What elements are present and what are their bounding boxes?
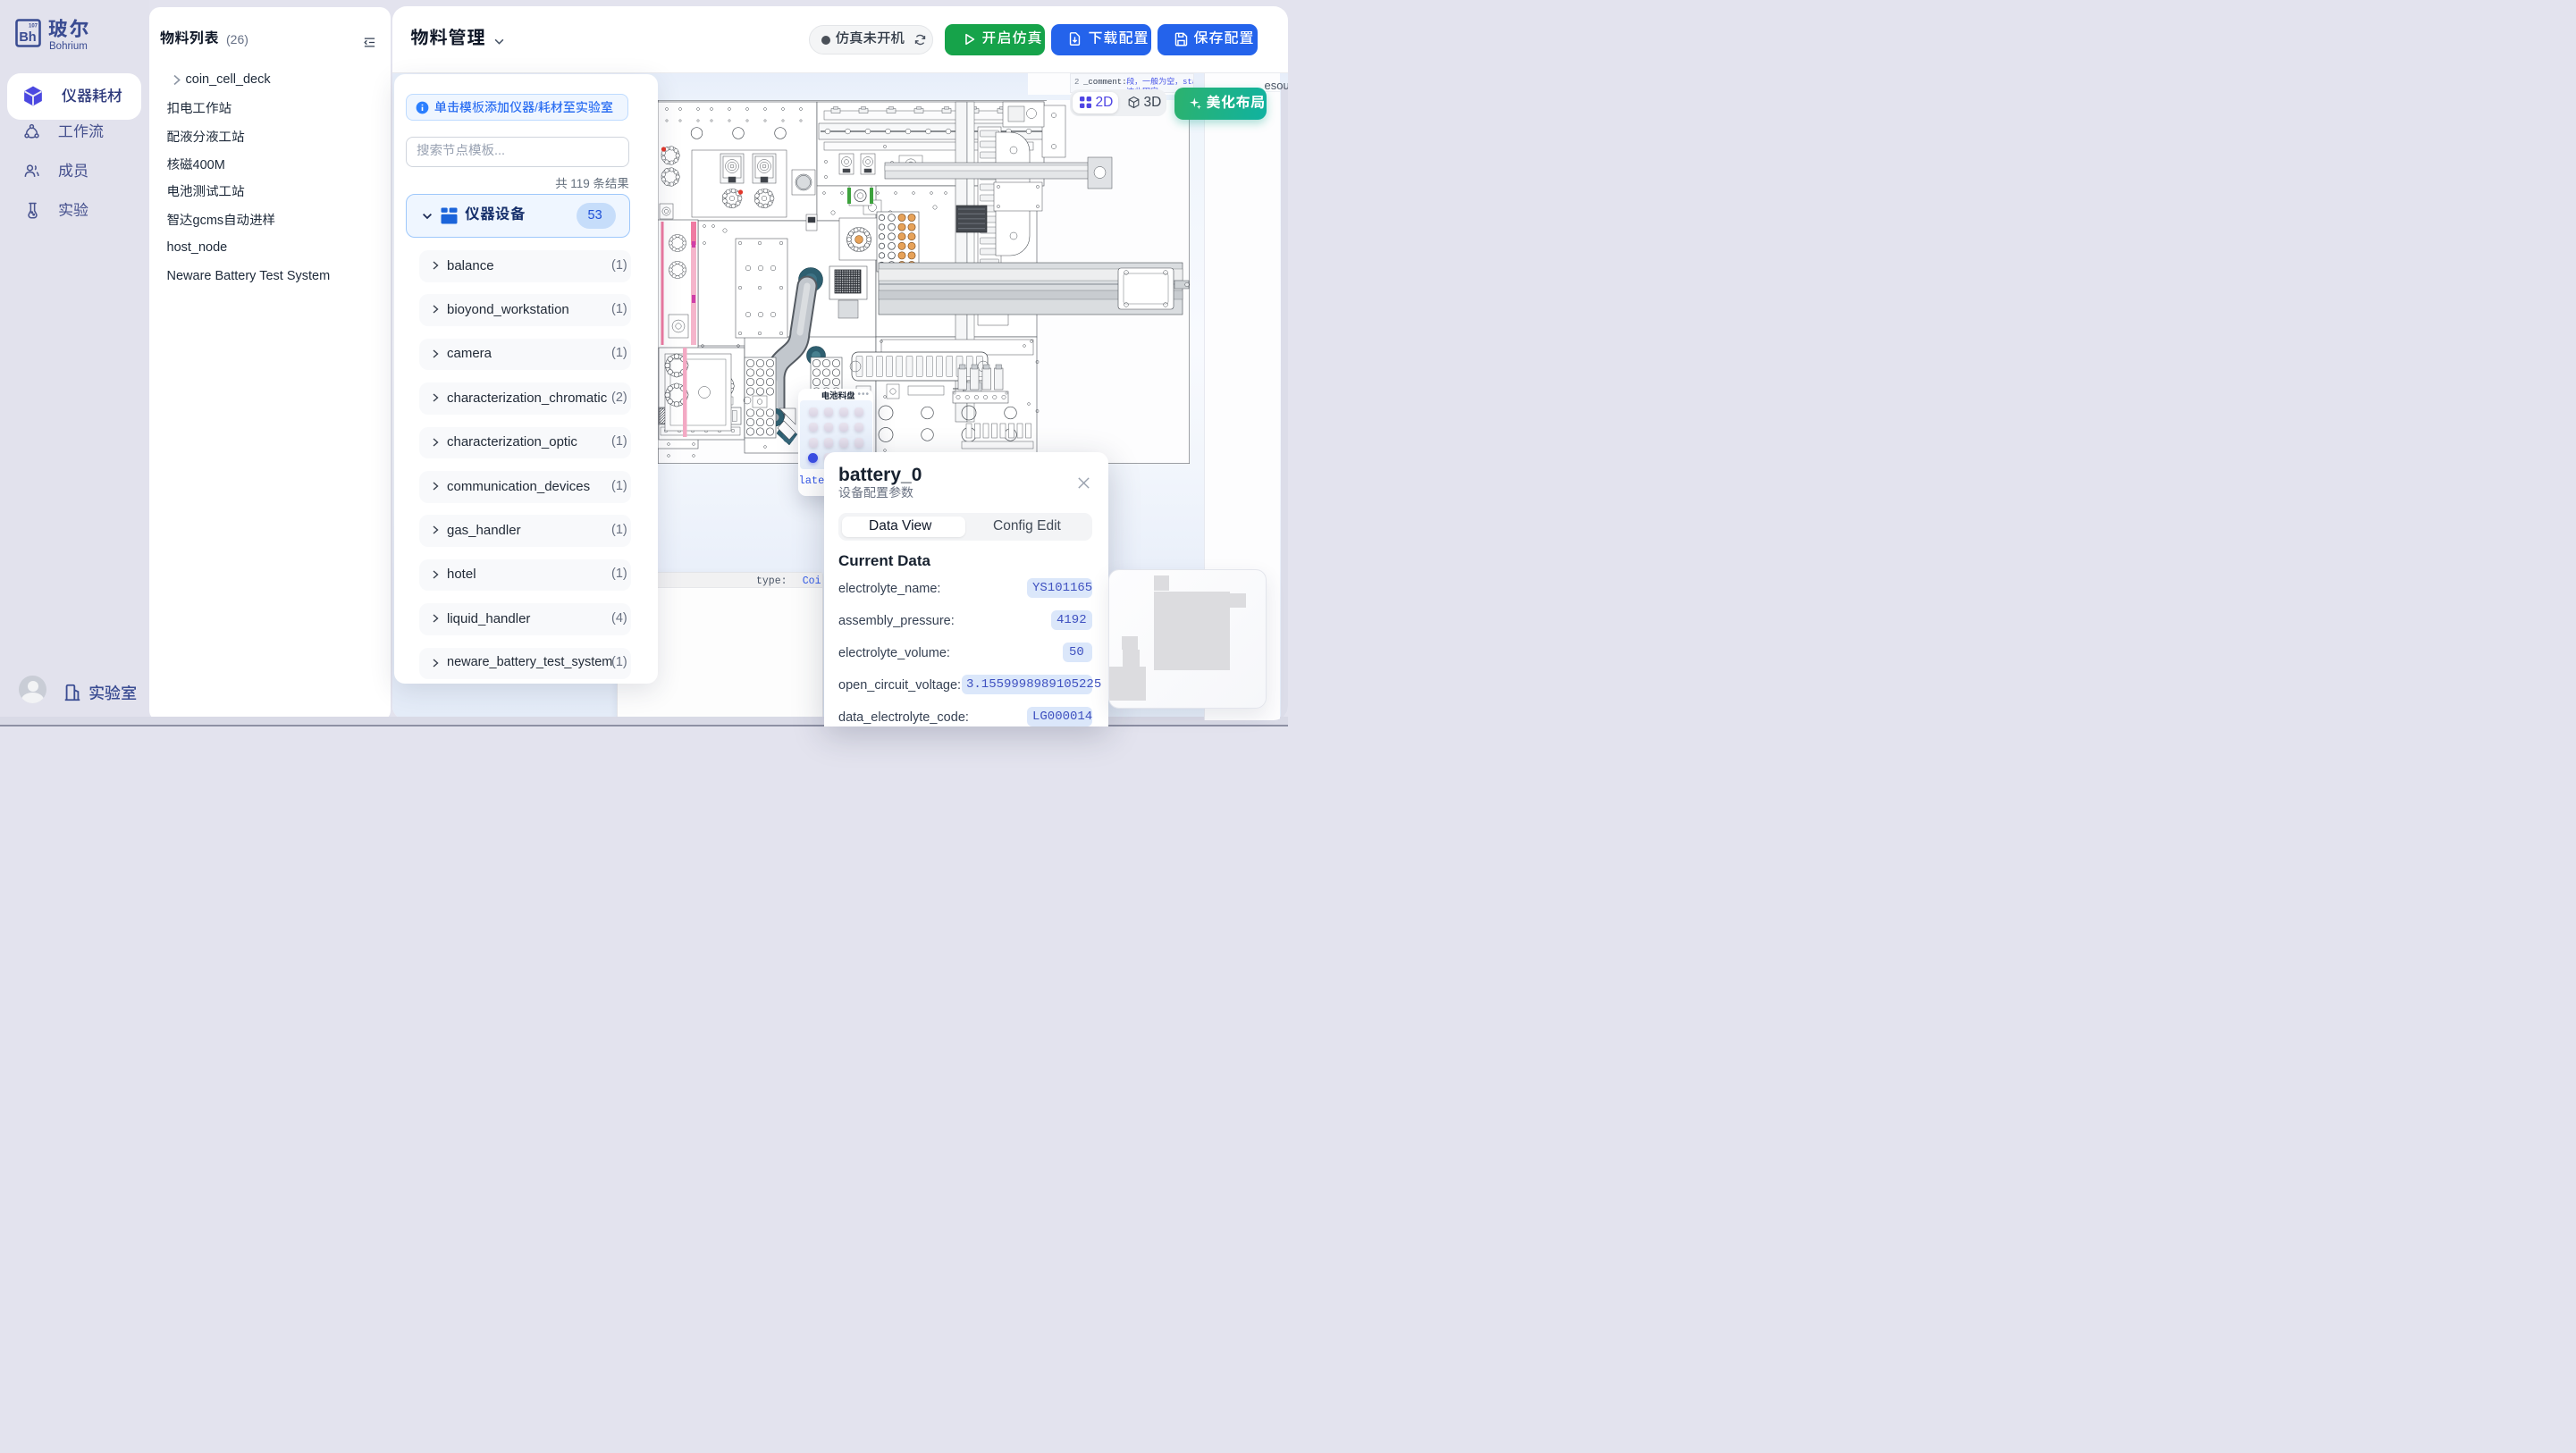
svg-text:Bh: Bh [19, 30, 36, 45]
svg-text:107: 107 [29, 24, 38, 29]
